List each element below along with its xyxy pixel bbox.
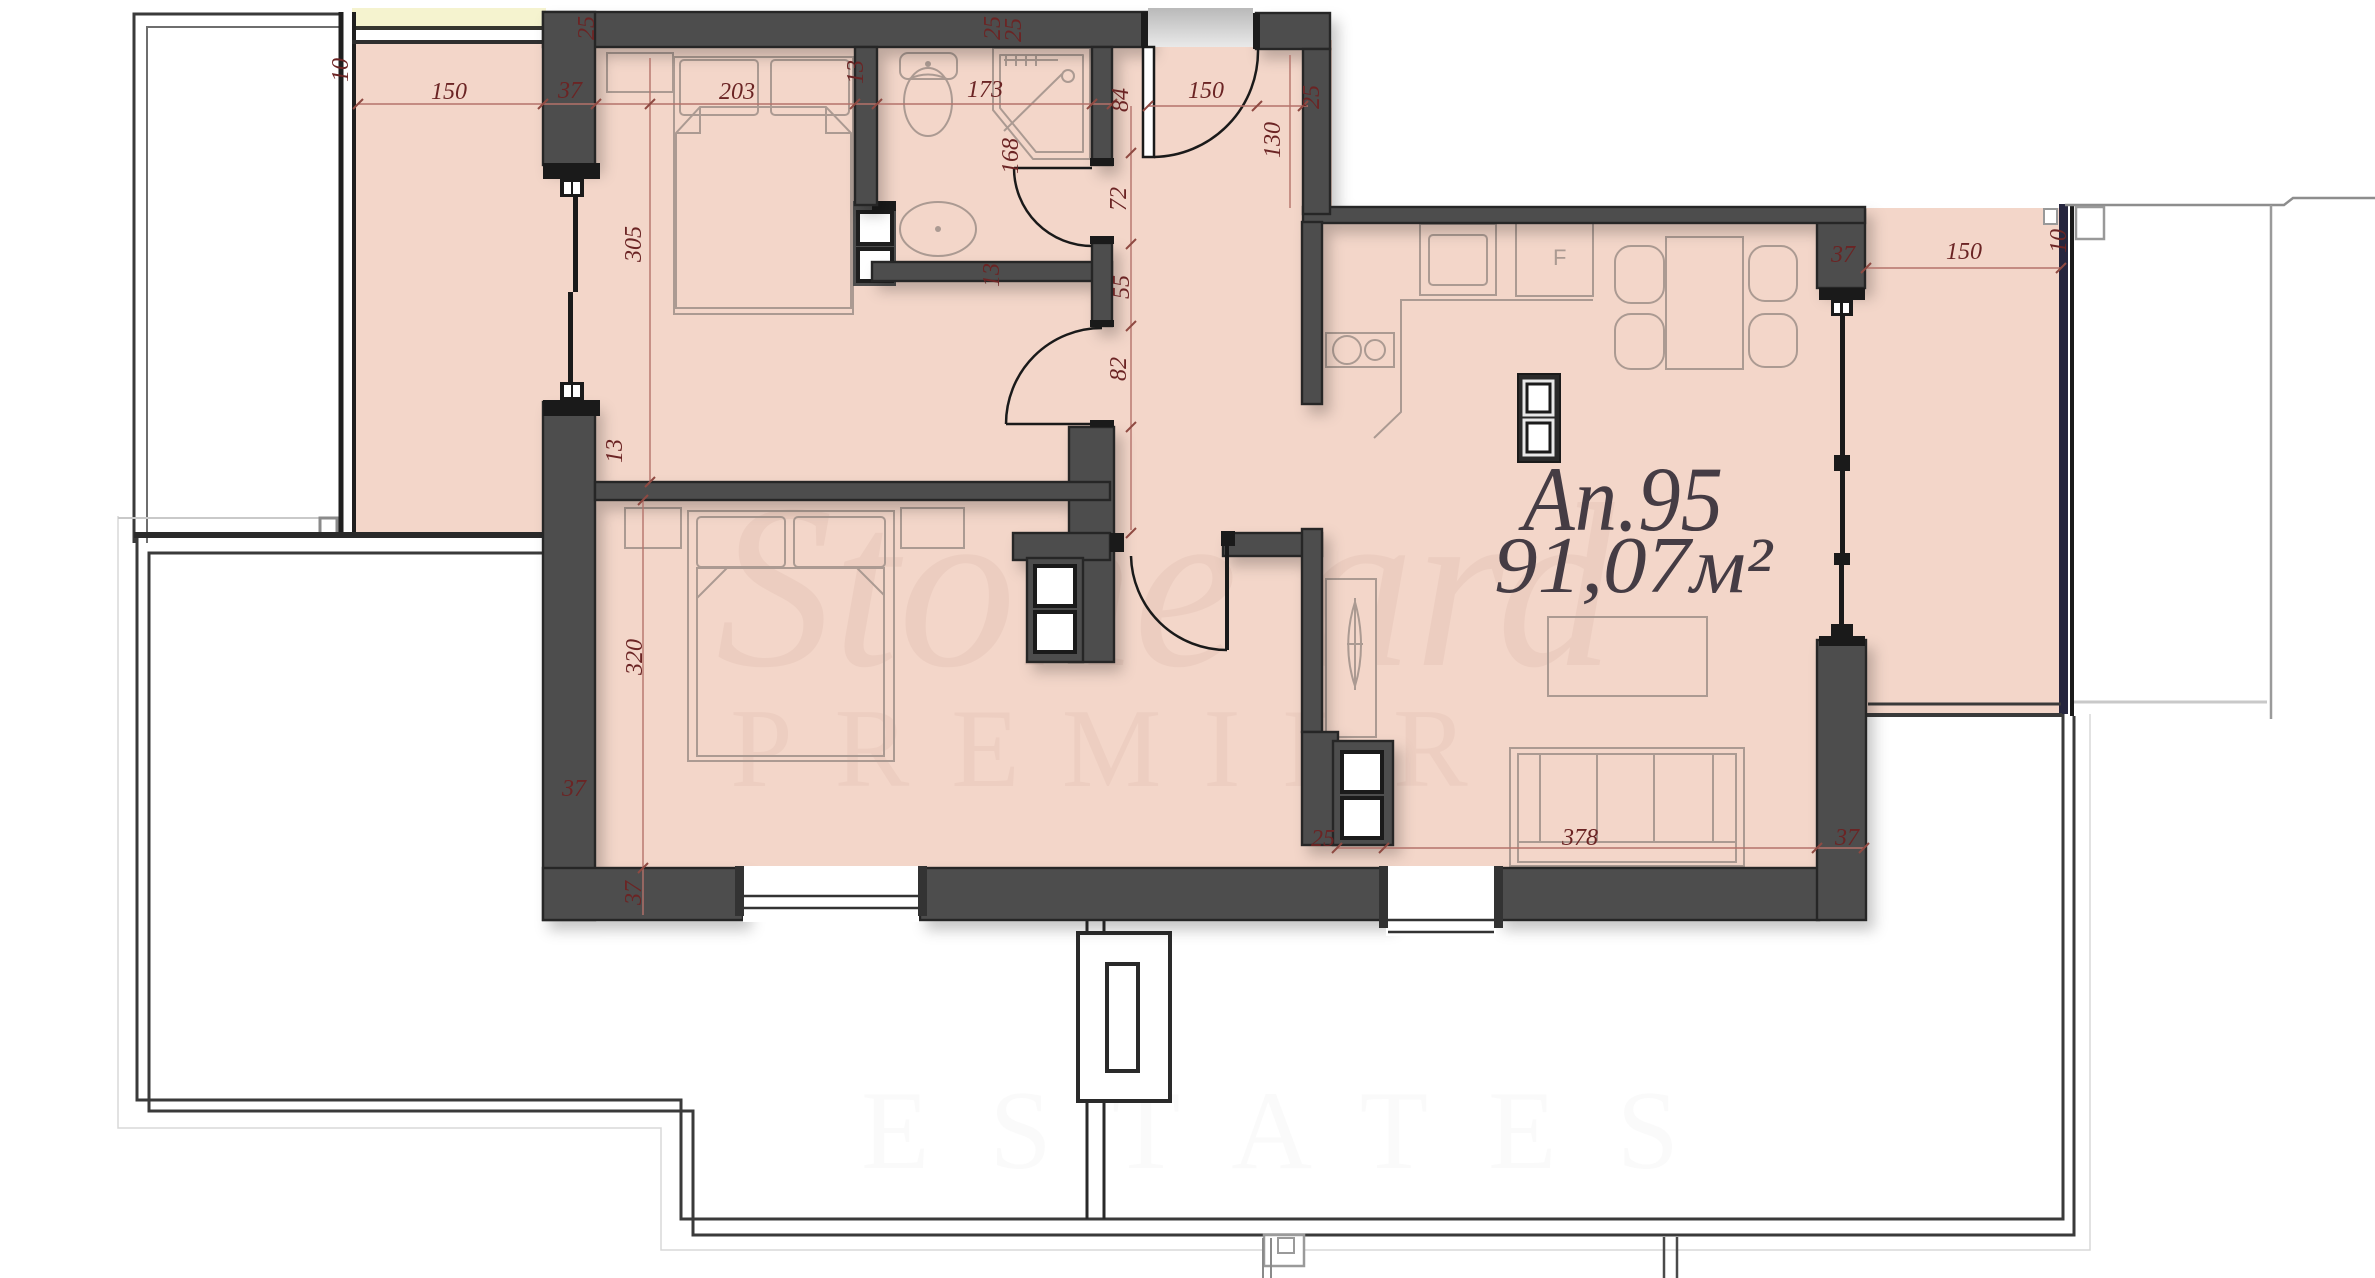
svg-text:13: 13 bbox=[843, 60, 869, 84]
svg-text:305: 305 bbox=[621, 226, 647, 263]
svg-text:13: 13 bbox=[979, 263, 1005, 287]
svg-text:130: 130 bbox=[1260, 122, 1286, 158]
svg-text:173: 173 bbox=[967, 77, 1003, 103]
svg-text:37: 37 bbox=[621, 880, 647, 906]
svg-text:F: F bbox=[1553, 245, 1566, 270]
svg-text:25: 25 bbox=[574, 16, 600, 40]
svg-text:91,07м²: 91,07м² bbox=[1494, 522, 1774, 610]
svg-text:25: 25 bbox=[1001, 18, 1027, 42]
svg-text:150: 150 bbox=[431, 79, 467, 105]
svg-text:10: 10 bbox=[2046, 229, 2072, 253]
svg-text:82: 82 bbox=[1106, 357, 1132, 381]
svg-text:150: 150 bbox=[1946, 239, 1982, 265]
svg-text:168: 168 bbox=[998, 138, 1024, 174]
svg-text:25: 25 bbox=[1299, 85, 1325, 109]
svg-text:37: 37 bbox=[1834, 825, 1860, 851]
svg-text:37: 37 bbox=[561, 776, 587, 802]
svg-text:13: 13 bbox=[602, 439, 628, 463]
svg-text:203: 203 bbox=[719, 79, 755, 105]
svg-text:10: 10 bbox=[328, 58, 354, 82]
svg-text:ESTATES: ESTATES bbox=[861, 1069, 1739, 1193]
svg-text:150: 150 bbox=[1188, 78, 1224, 104]
svg-text:378: 378 bbox=[1561, 825, 1598, 851]
svg-text:55: 55 bbox=[1109, 275, 1135, 299]
svg-text:25: 25 bbox=[1311, 826, 1335, 852]
svg-text:84: 84 bbox=[1108, 88, 1134, 112]
svg-text:37: 37 bbox=[1830, 242, 1856, 268]
svg-text:72: 72 bbox=[1106, 187, 1132, 211]
svg-text:37: 37 bbox=[557, 78, 583, 104]
svg-text:320: 320 bbox=[622, 639, 648, 676]
